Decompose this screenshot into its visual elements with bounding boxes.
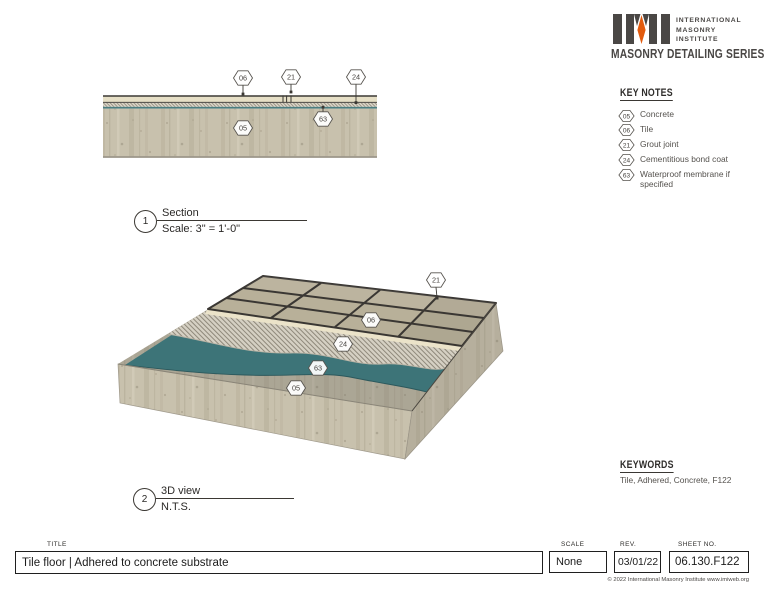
- org-name: INTERNATIONAL MASONRY INSTITUTE: [676, 16, 741, 45]
- view-label-rule: [156, 498, 294, 499]
- callout-membrane: 63: [314, 112, 333, 126]
- detail-sheet: INTERNATIONAL MASONRY INSTITUTE MASONRY …: [0, 0, 768, 593]
- keynote-hex-icon: 63: [618, 168, 635, 182]
- svg-text:24: 24: [339, 340, 347, 349]
- view-number-circle: 2: [133, 488, 156, 511]
- view-number-circle: 1: [134, 210, 157, 233]
- keynote-label: Waterproof membrane if specified: [640, 168, 762, 189]
- section-drawing: 06 21 24 63 05: [95, 68, 385, 168]
- section-tile-layer: [103, 97, 377, 103]
- org-line: INTERNATIONAL: [676, 16, 741, 26]
- sheet-no-value-box: 06.130.F122: [669, 551, 749, 573]
- keynote-hex-icon: 05: [618, 109, 635, 123]
- keywords-heading: KEYWORDS: [620, 459, 674, 473]
- svg-text:63: 63: [314, 364, 322, 373]
- keynote-hex-icon: 21: [618, 138, 635, 152]
- logo-letter-m: [626, 14, 634, 44]
- keywords-text: Tile, Adhered, Concrete, F122: [620, 475, 731, 485]
- callout-grout: 21: [282, 70, 301, 84]
- callout-membrane: 63: [309, 361, 328, 375]
- svg-text:63: 63: [319, 115, 327, 124]
- scale-value: None: [556, 556, 582, 568]
- callout-tile: 06: [362, 313, 381, 327]
- key-note-row: 05 Concrete: [618, 108, 768, 123]
- callout-grout: 21: [427, 273, 446, 287]
- svg-text:21: 21: [623, 143, 631, 150]
- svg-text:24: 24: [623, 158, 631, 165]
- keynote-label: Grout joint: [640, 138, 762, 150]
- callout-bondcoat: 24: [334, 337, 353, 351]
- svg-text:05: 05: [239, 124, 247, 133]
- scale-label: SCALE: [561, 541, 584, 548]
- logo-letter-i1: [613, 14, 622, 44]
- keynote-label: Concrete: [640, 108, 762, 120]
- svg-text:63: 63: [623, 173, 631, 180]
- view-name: Section: [162, 207, 199, 219]
- logo-letter-i2: [661, 14, 670, 44]
- section-membrane-layer: [103, 107, 377, 109]
- svg-text:05: 05: [623, 113, 631, 120]
- org-line: INSTITUTE: [676, 35, 741, 45]
- rev-label: REV.: [620, 541, 636, 548]
- key-note-row: 21 Grout joint: [618, 138, 768, 153]
- svg-text:21: 21: [287, 73, 295, 82]
- key-note-row: 63 Waterproof membrane if specified: [618, 168, 768, 189]
- key-note-row: 24 Cementitious bond coat: [618, 153, 768, 168]
- org-line: MASONRY: [676, 26, 741, 36]
- keynote-hex-icon: 06: [618, 123, 635, 137]
- svg-text:24: 24: [352, 73, 360, 82]
- callout-concrete: 05: [234, 121, 253, 135]
- copyright-text: © 2022 International Masonry Institute w…: [607, 577, 749, 583]
- svg-text:06: 06: [623, 128, 631, 135]
- sheet-no-value: 06.130.F122: [675, 556, 740, 568]
- section-bondcoat-layer: [103, 103, 377, 107]
- scale-value-box: None: [549, 551, 607, 573]
- key-notes-list: 05 Concrete 06 Tile 21 Grout joint 24 Ce…: [618, 108, 768, 190]
- view-scale: Scale: 3" = 1'-0": [162, 223, 240, 235]
- callout-tile: 06: [234, 71, 253, 85]
- imi-logo: [613, 14, 671, 45]
- title-value-box: Tile floor | Adhered to concrete substra…: [15, 551, 543, 574]
- svg-text:05: 05: [292, 384, 300, 393]
- key-note-row: 06 Tile: [618, 123, 768, 138]
- svg-text:06: 06: [367, 316, 375, 325]
- svg-text:21: 21: [432, 276, 440, 285]
- rev-value: 03/01/22: [618, 557, 658, 568]
- keynote-label: Tile: [640, 123, 762, 135]
- callout-bondcoat: 24: [347, 70, 366, 84]
- view-label-rule: [157, 220, 307, 221]
- keynote-hex-icon: 24: [618, 153, 635, 167]
- sheet-no-label: SHEET NO.: [678, 541, 717, 548]
- svg-text:06: 06: [239, 74, 247, 83]
- series-title: MASONRY DETAILING SERIES: [611, 47, 765, 61]
- callout-concrete: 05: [287, 381, 306, 395]
- leader-dot: [436, 297, 439, 300]
- view-scale: N.T.S.: [161, 501, 191, 513]
- title-label: TITLE: [47, 541, 67, 548]
- key-notes-heading: KEY NOTES: [620, 87, 673, 101]
- rev-value-box: 03/01/22: [614, 551, 661, 573]
- keynote-label: Cementitious bond coat: [640, 153, 762, 165]
- sheet-title: Tile floor | Adhered to concrete substra…: [22, 557, 228, 569]
- three-d-drawing: 21 06 24 63 05: [110, 265, 510, 465]
- view-name: 3D view: [161, 485, 200, 497]
